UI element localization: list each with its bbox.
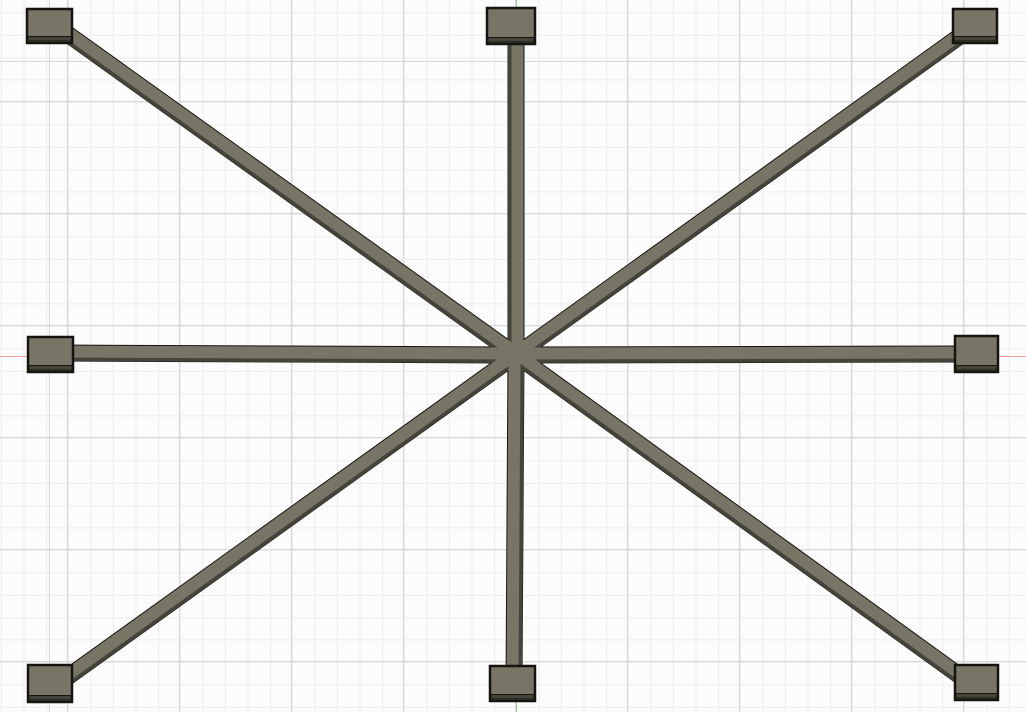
spoke-sw-face[interactable] xyxy=(61,354,515,680)
pad-s-side-face xyxy=(491,695,534,700)
pad-e[interactable] xyxy=(955,336,998,372)
spoke-e-face[interactable] xyxy=(516,353,973,354)
pad-ne-side-face xyxy=(954,37,996,42)
pad-sw-side-face xyxy=(29,696,71,701)
spoke-se-face[interactable] xyxy=(517,354,968,680)
spoke-w-face[interactable] xyxy=(53,352,516,354)
pad-e-side-face xyxy=(956,366,997,371)
pad-n[interactable] xyxy=(487,8,535,44)
pad-nw[interactable] xyxy=(27,9,72,43)
cad-viewport-canvas[interactable] xyxy=(0,0,1026,712)
pad-se[interactable] xyxy=(955,665,998,700)
spoke-nw-face[interactable] xyxy=(63,29,517,354)
pad-s[interactable] xyxy=(490,666,535,701)
pad-w[interactable] xyxy=(28,337,73,372)
spoke-s-face[interactable] xyxy=(513,355,515,684)
pad-ne[interactable] xyxy=(953,9,997,43)
pad-nw-side-face xyxy=(28,37,71,42)
pad-w-side-face xyxy=(29,366,72,371)
spoke-ne-face[interactable] xyxy=(515,30,966,354)
pad-sw[interactable] xyxy=(28,665,72,702)
pad-se-side-face xyxy=(956,694,997,699)
star-model xyxy=(0,0,1026,712)
pad-n-side-face xyxy=(488,38,534,43)
